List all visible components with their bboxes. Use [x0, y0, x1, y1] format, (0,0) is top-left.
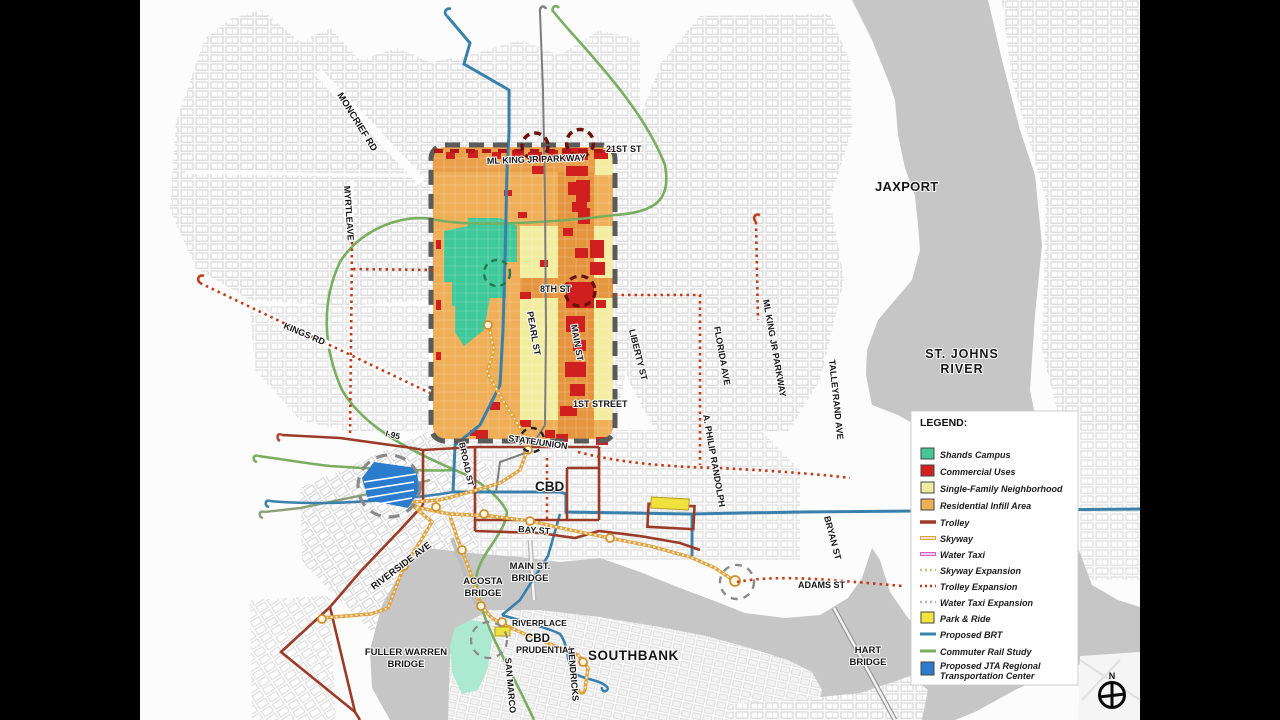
- svg-text:ACOSTA: ACOSTA: [463, 576, 503, 587]
- svg-text:FULLER WARREN: FULLER WARREN: [365, 647, 447, 658]
- svg-text:SOUTHBANK: SOUTHBANK: [588, 648, 679, 663]
- svg-text:Skyway: Skyway: [940, 534, 974, 544]
- svg-text:Park & Ride: Park & Ride: [940, 614, 991, 624]
- svg-text:N: N: [1109, 671, 1116, 681]
- svg-text:PRUDENTIAL: PRUDENTIAL: [516, 645, 575, 655]
- svg-text:Commuter Rail Study: Commuter Rail Study: [940, 647, 1033, 657]
- svg-text:Trolley: Trolley: [940, 518, 970, 528]
- svg-text:Proposed JTA Regional: Proposed JTA Regional: [940, 661, 1041, 671]
- svg-text:MAIN ST.: MAIN ST.: [510, 561, 551, 572]
- svg-text:Commercial Uses: Commercial Uses: [940, 467, 1016, 477]
- svg-text:JAXPORT: JAXPORT: [875, 179, 939, 194]
- svg-text:21ST ST: 21ST ST: [606, 144, 642, 154]
- svg-text:Residential Infill Area: Residential Infill Area: [940, 501, 1031, 511]
- svg-text:Shands Campus: Shands Campus: [940, 450, 1011, 460]
- svg-text:Single-Family Neighborhood: Single-Family Neighborhood: [940, 484, 1063, 494]
- svg-text:8TH ST: 8TH ST: [540, 284, 572, 294]
- svg-text:BRIDGE: BRIDGE: [388, 659, 425, 670]
- svg-text:Water Taxi Expansion: Water Taxi Expansion: [940, 598, 1034, 608]
- svg-text:Water Taxi: Water Taxi: [940, 550, 986, 560]
- svg-text:BRIDGE: BRIDGE: [512, 573, 549, 584]
- svg-text:RIVERPLACE: RIVERPLACE: [512, 618, 567, 628]
- svg-text:BRIDGE: BRIDGE: [465, 588, 502, 599]
- svg-text:CBD: CBD: [525, 633, 550, 645]
- svg-text:LEGEND:: LEGEND:: [920, 417, 967, 429]
- svg-text:ADAMS ST: ADAMS ST: [798, 580, 846, 590]
- svg-text:RIVER: RIVER: [940, 362, 983, 376]
- svg-text:BRIDGE: BRIDGE: [850, 657, 887, 668]
- svg-text:ST. JOHNS: ST. JOHNS: [925, 347, 999, 361]
- svg-text:Trolley Expansion: Trolley Expansion: [940, 582, 1018, 592]
- svg-text:Transportation Center: Transportation Center: [940, 671, 1035, 681]
- svg-text:Proposed BRT: Proposed BRT: [940, 630, 1004, 640]
- svg-text:CBD: CBD: [535, 479, 564, 494]
- svg-text:Skyway Expansion: Skyway Expansion: [940, 566, 1022, 576]
- svg-text:1ST STREET: 1ST STREET: [573, 399, 628, 409]
- svg-text:HART: HART: [855, 645, 882, 656]
